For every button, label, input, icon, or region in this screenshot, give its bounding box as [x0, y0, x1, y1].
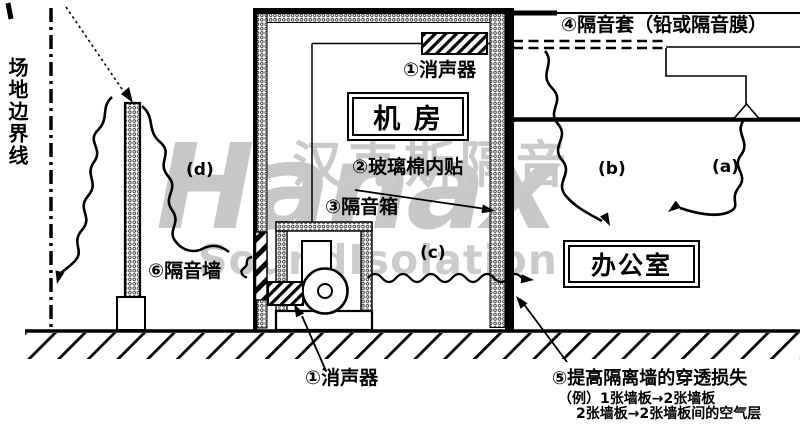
site-boundary-line: [8, 3, 51, 331]
silencer-bottom-label: ①消声器: [305, 368, 378, 389]
path-c-label: (c): [420, 244, 446, 263]
silencer-top-shape: [422, 33, 487, 54]
machine-room-label: 机 房: [373, 97, 442, 136]
transmission-loss-title: ⑤提高隔离墙的穿透损失: [552, 369, 747, 389]
path-a-label: (a): [712, 158, 739, 177]
soundproof-wall: [117, 103, 145, 330]
fan-hub: [318, 284, 332, 298]
soundproof-wall-label: ⑥隔音墙: [148, 261, 221, 282]
diagram-canvas: Hanax 汉克斯隔音 SoundIsolation: [0, 0, 800, 433]
sound-box-label: ③隔音箱: [325, 197, 398, 218]
path-b-label: (b): [598, 160, 626, 179]
sound-wave-b: [545, 51, 610, 226]
soundproof-box: [268, 222, 372, 330]
jacket-label: ④隔音套（铅或隔音膜）: [561, 15, 767, 36]
ceiling-diffuser: [734, 104, 759, 119]
sound-wave-left: [56, 97, 113, 284]
sound-wave-leak: [241, 257, 252, 278]
site-boundary-label: 场地边界线: [6, 57, 28, 167]
path-d-label: (d): [186, 161, 214, 180]
silencer-bottom-shape: [268, 282, 303, 305]
diffraction-dotted-arrow: [66, 7, 133, 103]
silencer-top-label: ①消声器: [403, 60, 476, 81]
machine-room-box: 机 房: [347, 92, 469, 141]
ground-hatching: [25, 331, 800, 359]
transmission-loss-example-2: 2张墙板→2张墙板间的空气层: [576, 407, 761, 422]
office-label: 办公室: [591, 246, 672, 282]
office-box: 办公室: [563, 240, 700, 288]
glass-wool-label: ②玻璃棉内贴: [352, 157, 463, 178]
